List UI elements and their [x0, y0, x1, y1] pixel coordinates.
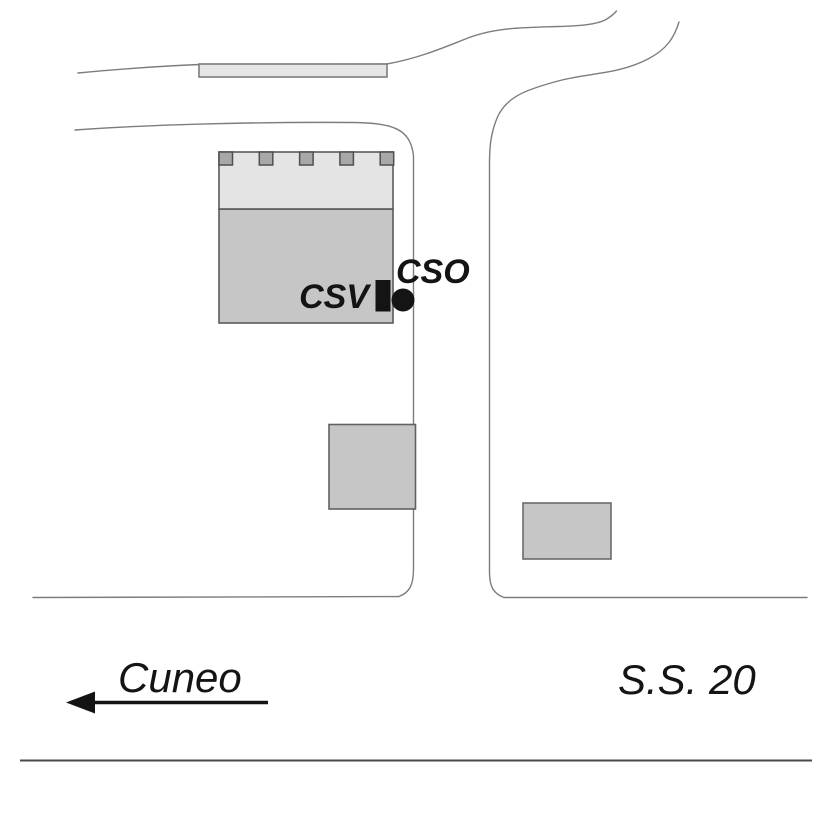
battlement-square: [300, 152, 314, 165]
sketch-map: CSV CSO Cuneo S.S. 20: [0, 0, 827, 827]
battlement-square: [380, 152, 394, 165]
cso-label: CSO: [396, 253, 470, 291]
battlement-square: [219, 152, 233, 165]
right-building: [523, 503, 611, 559]
cso-marker: [392, 289, 415, 312]
route-label: S.S. 20: [618, 656, 756, 703]
csv-marker: [376, 280, 391, 312]
roadside-strip-building: [199, 64, 387, 77]
cuneo-label: Cuneo: [118, 654, 242, 701]
battlement-square: [340, 152, 354, 165]
battlement-square: [259, 152, 273, 165]
csv-label: CSV: [299, 278, 372, 316]
map-drawing: CSV CSO Cuneo S.S. 20: [0, 0, 827, 827]
middle-building: [329, 425, 416, 510]
